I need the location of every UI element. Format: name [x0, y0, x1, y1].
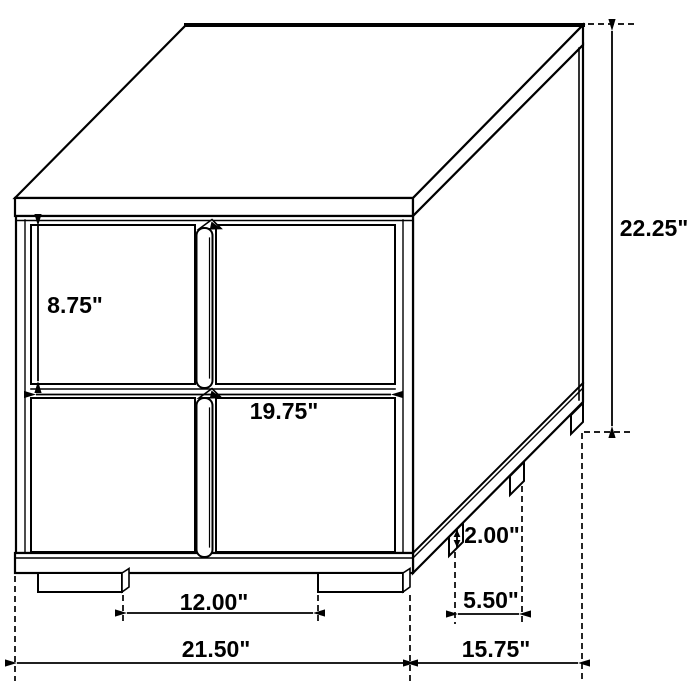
front-plinth [15, 553, 413, 573]
dimension-label-overall-width: 21.50" [182, 636, 250, 662]
dimension-label-drawer-width: 19.75" [250, 398, 318, 424]
dimension-label-drawer-height: 8.75" [47, 292, 103, 318]
dimension-diagram-canvas: 8.75" 19.75" 22.25" 2.00" 5.50" 12.00" 2… [0, 0, 700, 700]
dimension-label-leg-spacing-front: 12.00" [180, 589, 248, 615]
front-foot-right [318, 573, 403, 592]
dimension-label-leg-spacing-side: 5.50" [463, 587, 519, 613]
dimension-label-overall-height: 22.25" [620, 215, 688, 241]
top-slab-front [15, 198, 413, 216]
front-foot-left-side [122, 569, 129, 593]
nightstand-line-drawing: 8.75" 19.75" 22.25" 2.00" 5.50" 12.00" 2… [0, 0, 700, 700]
drawer-panel-lower-left [31, 398, 195, 552]
dimension-label-leg-height: 2.00" [464, 522, 520, 548]
front-foot-right-side [403, 569, 410, 593]
drawer-panel-upper-right [216, 225, 395, 384]
front-foot-left [38, 573, 122, 592]
dimension-label-overall-depth: 15.75" [462, 636, 530, 662]
